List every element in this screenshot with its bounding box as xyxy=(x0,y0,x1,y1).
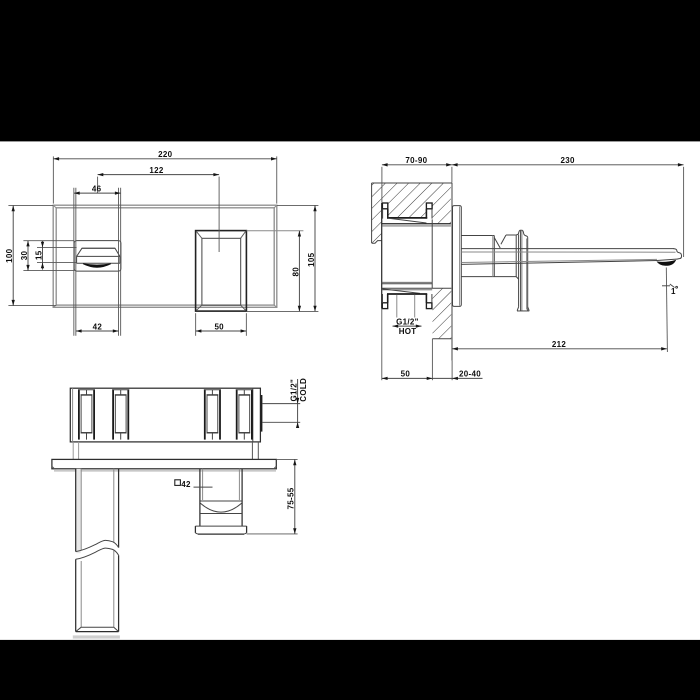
svg-text:46: 46 xyxy=(92,184,102,193)
svg-text:G1/2": G1/2" xyxy=(289,379,298,402)
svg-text:HOT: HOT xyxy=(399,327,417,336)
svg-text:220: 220 xyxy=(158,150,172,159)
svg-text:20-40: 20-40 xyxy=(459,370,481,379)
svg-text:212: 212 xyxy=(552,340,566,349)
svg-text:50: 50 xyxy=(214,322,224,331)
svg-text:COLD: COLD xyxy=(299,378,308,402)
svg-text:230: 230 xyxy=(560,156,574,165)
svg-text:70-90: 70-90 xyxy=(405,156,427,165)
svg-text:42: 42 xyxy=(181,480,191,489)
svg-text:42: 42 xyxy=(93,322,103,331)
svg-text:100: 100 xyxy=(5,248,14,262)
svg-text:15: 15 xyxy=(34,250,43,260)
svg-text:50: 50 xyxy=(401,369,411,378)
svg-text:30: 30 xyxy=(20,251,29,261)
svg-text:75-55: 75-55 xyxy=(287,487,296,509)
svg-text:1: 1 xyxy=(671,287,676,296)
svg-text:80: 80 xyxy=(291,267,300,277)
svg-text:105: 105 xyxy=(307,252,316,266)
svg-text:122: 122 xyxy=(149,166,163,175)
svg-text:G1/2": G1/2" xyxy=(396,318,419,327)
